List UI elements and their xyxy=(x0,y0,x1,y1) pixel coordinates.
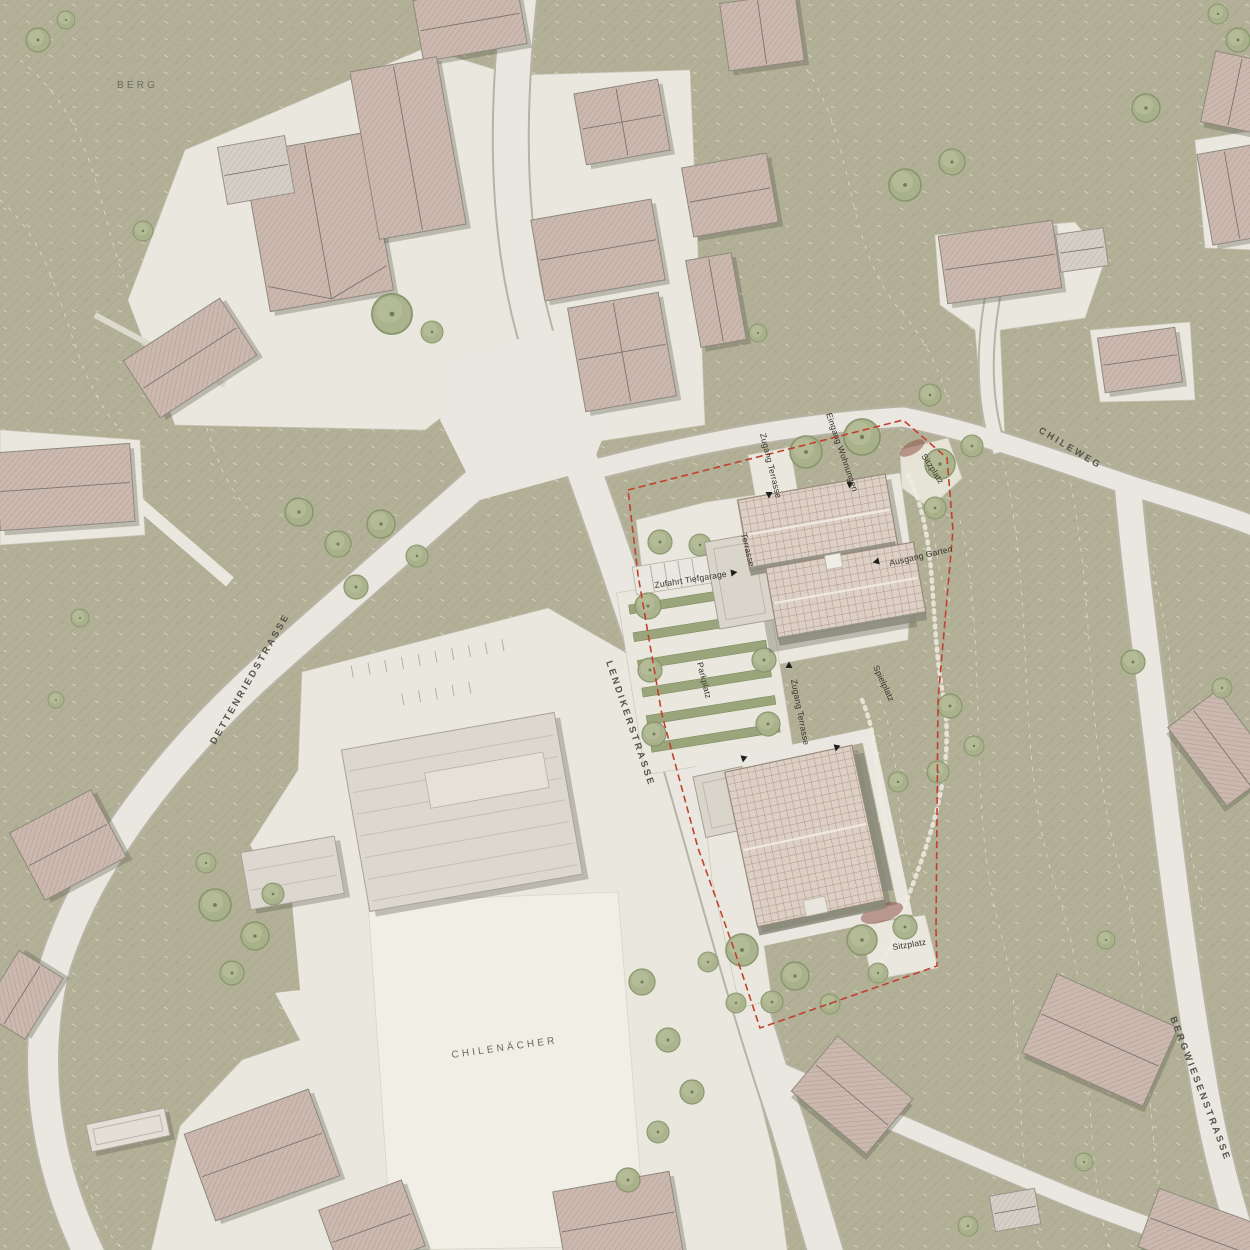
tree xyxy=(1208,4,1228,24)
tree xyxy=(844,419,880,455)
tree xyxy=(48,692,64,708)
site-plan-svg: BERG DETTENRIEDSTRASSE LENDIKERSTRASSE C… xyxy=(0,0,1250,1250)
tree xyxy=(749,324,767,342)
tree xyxy=(372,294,412,334)
site-plan-map: BERG DETTENRIEDSTRASSE LENDIKERSTRASSE C… xyxy=(0,0,1250,1250)
tree xyxy=(71,609,89,627)
building xyxy=(574,78,675,169)
tree xyxy=(964,736,984,756)
tree xyxy=(656,1028,680,1052)
building xyxy=(989,1188,1041,1231)
tree xyxy=(781,962,809,990)
tree xyxy=(196,853,216,873)
tree xyxy=(648,530,672,554)
tree xyxy=(889,169,921,201)
tree xyxy=(1097,931,1115,949)
building xyxy=(1098,327,1188,398)
tree xyxy=(756,712,780,736)
tree xyxy=(1226,28,1250,52)
building xyxy=(682,152,784,241)
tree xyxy=(1132,94,1160,122)
building xyxy=(568,292,682,417)
tree xyxy=(958,1216,978,1236)
building xyxy=(217,136,294,205)
tree xyxy=(961,435,983,457)
tree xyxy=(847,925,877,955)
tree xyxy=(726,934,758,966)
tree xyxy=(262,883,284,905)
tree xyxy=(1212,678,1232,698)
tree xyxy=(919,384,941,406)
tree xyxy=(642,722,666,746)
tree xyxy=(57,11,75,29)
tree xyxy=(761,991,783,1013)
atrium-gap xyxy=(824,553,842,570)
tree xyxy=(421,321,443,343)
tree xyxy=(26,28,50,52)
tree xyxy=(647,1121,669,1143)
tree xyxy=(638,658,662,682)
tree xyxy=(344,575,368,599)
tree xyxy=(939,149,965,175)
tree xyxy=(698,952,718,972)
tree xyxy=(924,497,946,519)
tree xyxy=(888,772,908,792)
label-berg: BERG xyxy=(117,80,158,91)
tree xyxy=(938,694,962,718)
building xyxy=(1056,228,1109,272)
tree xyxy=(199,889,231,921)
tree xyxy=(790,436,822,468)
tree xyxy=(726,993,746,1013)
tree xyxy=(893,915,917,939)
tree xyxy=(406,545,428,567)
tree xyxy=(616,1168,640,1192)
tree xyxy=(220,961,244,985)
tree xyxy=(1121,650,1145,674)
tree xyxy=(635,593,661,619)
tree xyxy=(680,1080,704,1104)
tree xyxy=(325,531,351,557)
building xyxy=(720,0,809,76)
tree xyxy=(285,498,313,526)
tree xyxy=(133,221,153,241)
tree xyxy=(629,969,655,995)
tree xyxy=(820,994,840,1014)
tree xyxy=(1075,1153,1093,1171)
tree xyxy=(868,963,888,983)
tree xyxy=(241,922,269,950)
tree xyxy=(367,510,395,538)
building xyxy=(0,443,139,535)
